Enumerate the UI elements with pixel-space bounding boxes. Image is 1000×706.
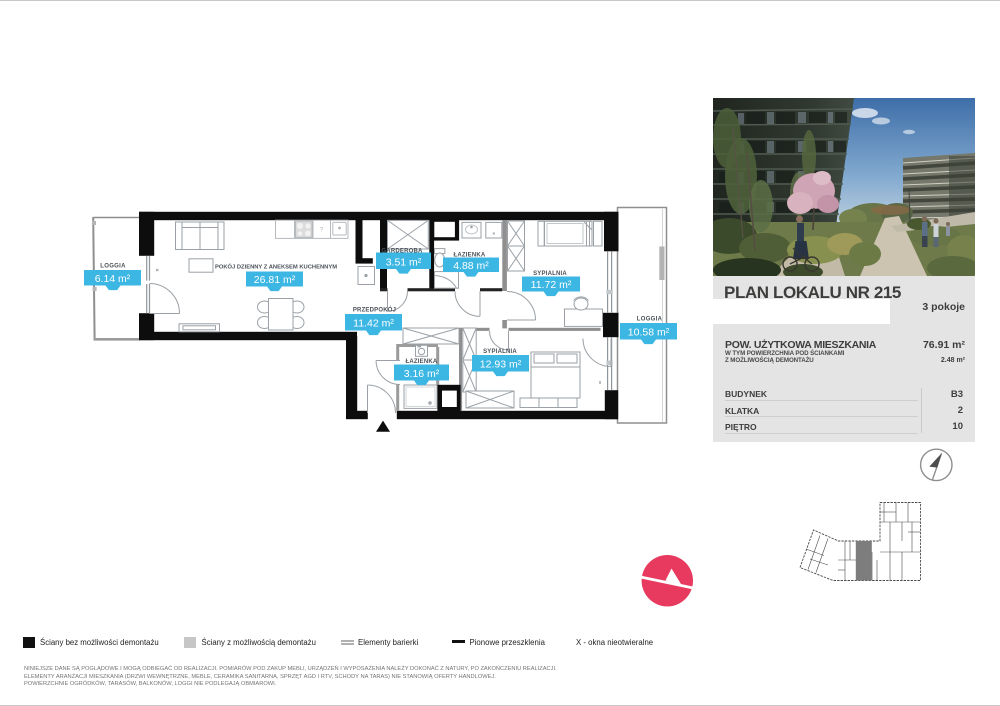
svg-text:26.81 m²: 26.81 m²	[254, 274, 296, 286]
svg-text:LOGGIA: LOGGIA	[637, 317, 663, 323]
svg-text:POKÓJ DZIENNY Z ANEKSEM KUCHEN: POKÓJ DZIENNY Z ANEKSEM KUCHENNYM	[215, 263, 337, 271]
svg-text:10.58 m²: 10.58 m²	[628, 327, 670, 339]
svg-text:12.93 m²: 12.93 m²	[480, 359, 522, 371]
svg-text:3.16 m²: 3.16 m²	[404, 368, 440, 380]
svg-text:SYPIALNIA: SYPIALNIA	[483, 349, 517, 355]
svg-text:11.72 m²: 11.72 m²	[531, 279, 572, 291]
svg-text:x: x	[599, 380, 602, 386]
svg-text:11.42 m²: 11.42 m²	[353, 318, 394, 330]
svg-text:ŁAZIENKA: ŁAZIENKA	[454, 252, 486, 258]
svg-text:ŁAZIENKA: ŁAZIENKA	[406, 359, 438, 365]
svg-text:SYPIALNIA: SYPIALNIA	[533, 271, 567, 277]
svg-text:PRZEDPOKÓJ: PRZEDPOKÓJ	[353, 306, 396, 314]
svg-text:4.88 m²: 4.88 m²	[453, 260, 489, 272]
svg-text:6.14 m²: 6.14 m²	[95, 273, 131, 285]
svg-text:3.51 m²: 3.51 m²	[386, 256, 422, 268]
svg-text:LOGGIA: LOGGIA	[100, 264, 126, 270]
